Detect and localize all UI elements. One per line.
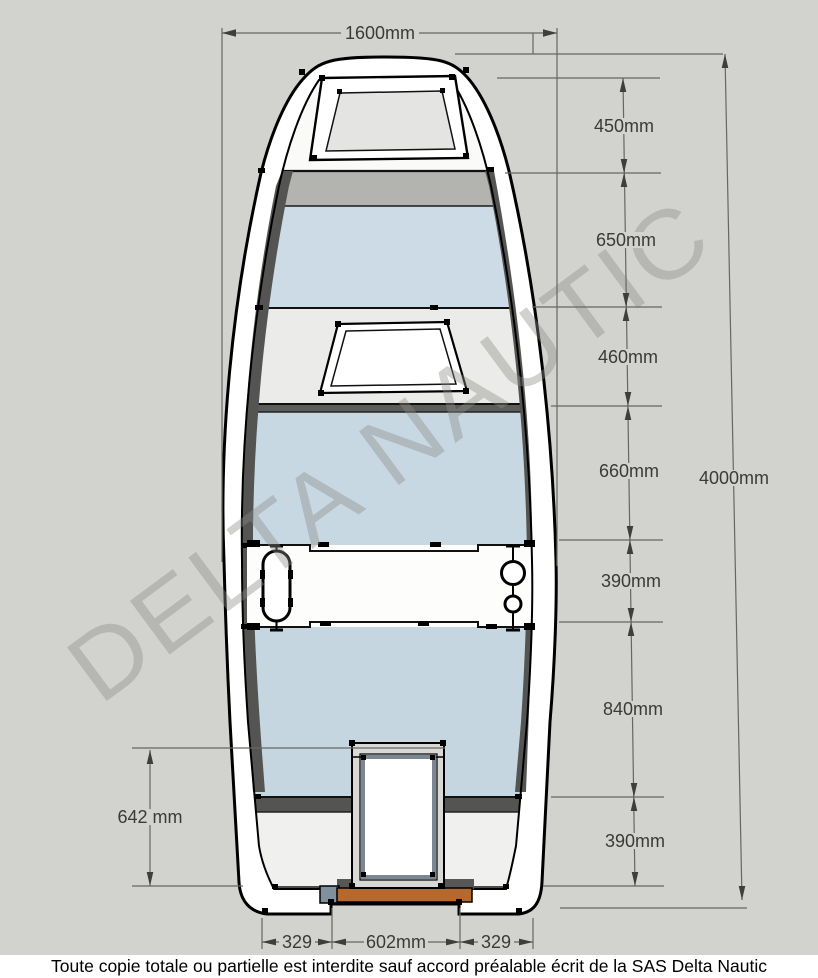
copyright-notice: Toute copie totale ou partielle est inte… <box>51 956 767 976</box>
tick <box>247 623 260 630</box>
tick <box>288 598 293 607</box>
transom-wood-board <box>337 888 472 902</box>
dim-transom-329a-label: 329 <box>282 932 312 952</box>
boat-plan-canvas: DELTA NAUTIC <box>0 0 818 978</box>
tick <box>486 624 497 629</box>
tick <box>430 542 441 547</box>
dim-beam-width-label: 1600mm <box>345 23 415 43</box>
tick <box>524 540 535 547</box>
tick <box>320 621 331 626</box>
bow-hatch-lid <box>326 91 455 151</box>
bench-round-cutout-large <box>502 562 525 585</box>
bench-round-cutout-small <box>505 596 521 612</box>
tick <box>418 621 429 626</box>
dim-segment-660-label: 660mm <box>599 461 659 481</box>
motor-well-opening <box>363 757 434 877</box>
boat-technical-drawing-page: DELTA NAUTIC <box>0 0 818 978</box>
motor-well <box>352 743 444 888</box>
dim-segment-460-label: 460mm <box>598 347 658 367</box>
dim-stern-well-label: 642 mm <box>117 807 182 827</box>
footer: Toute copie totale ou partielle est inte… <box>0 955 818 978</box>
dim-transom-329b-label: 329 <box>481 932 511 952</box>
dim-overall-length-label: 4000mm <box>699 468 769 488</box>
dim-segment-390b-label: 390mm <box>605 831 665 851</box>
tick <box>524 623 535 630</box>
dim-segment-840-label: 840mm <box>603 699 663 719</box>
dim-segment-650-label: 650mm <box>596 230 656 250</box>
dim-segment-450-label: 450mm <box>594 116 654 136</box>
dim-segment-390a-label: 390mm <box>601 571 661 591</box>
dim-transom-602-label: 602mm <box>366 932 426 952</box>
